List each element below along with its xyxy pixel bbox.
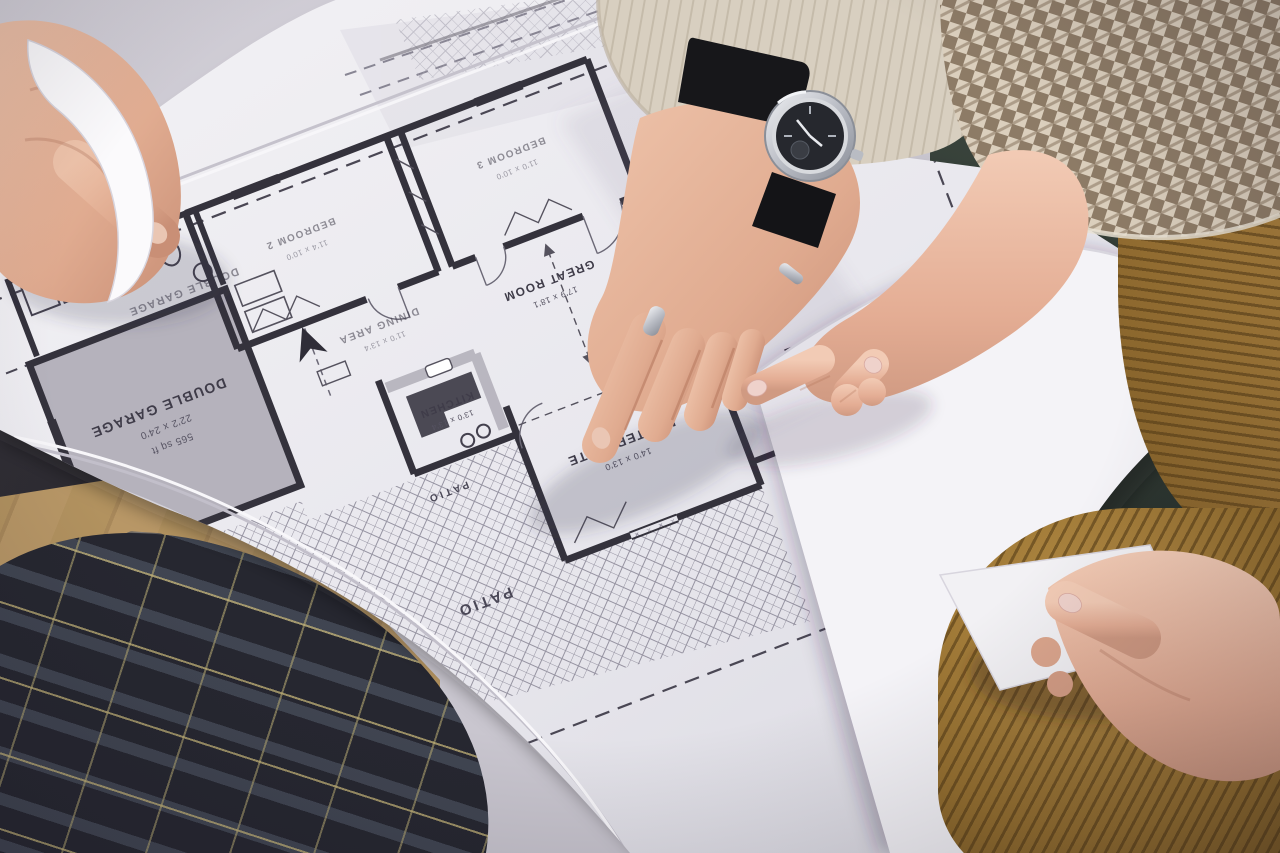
hands-overlay [0,0,1280,853]
watch-subdial [791,141,809,159]
photo-scene: DOUBLE GARAGE [0,0,1280,853]
womans-holding-hand [940,545,1280,781]
mans-left-hand [0,20,181,303]
ring-finger [700,348,722,415]
